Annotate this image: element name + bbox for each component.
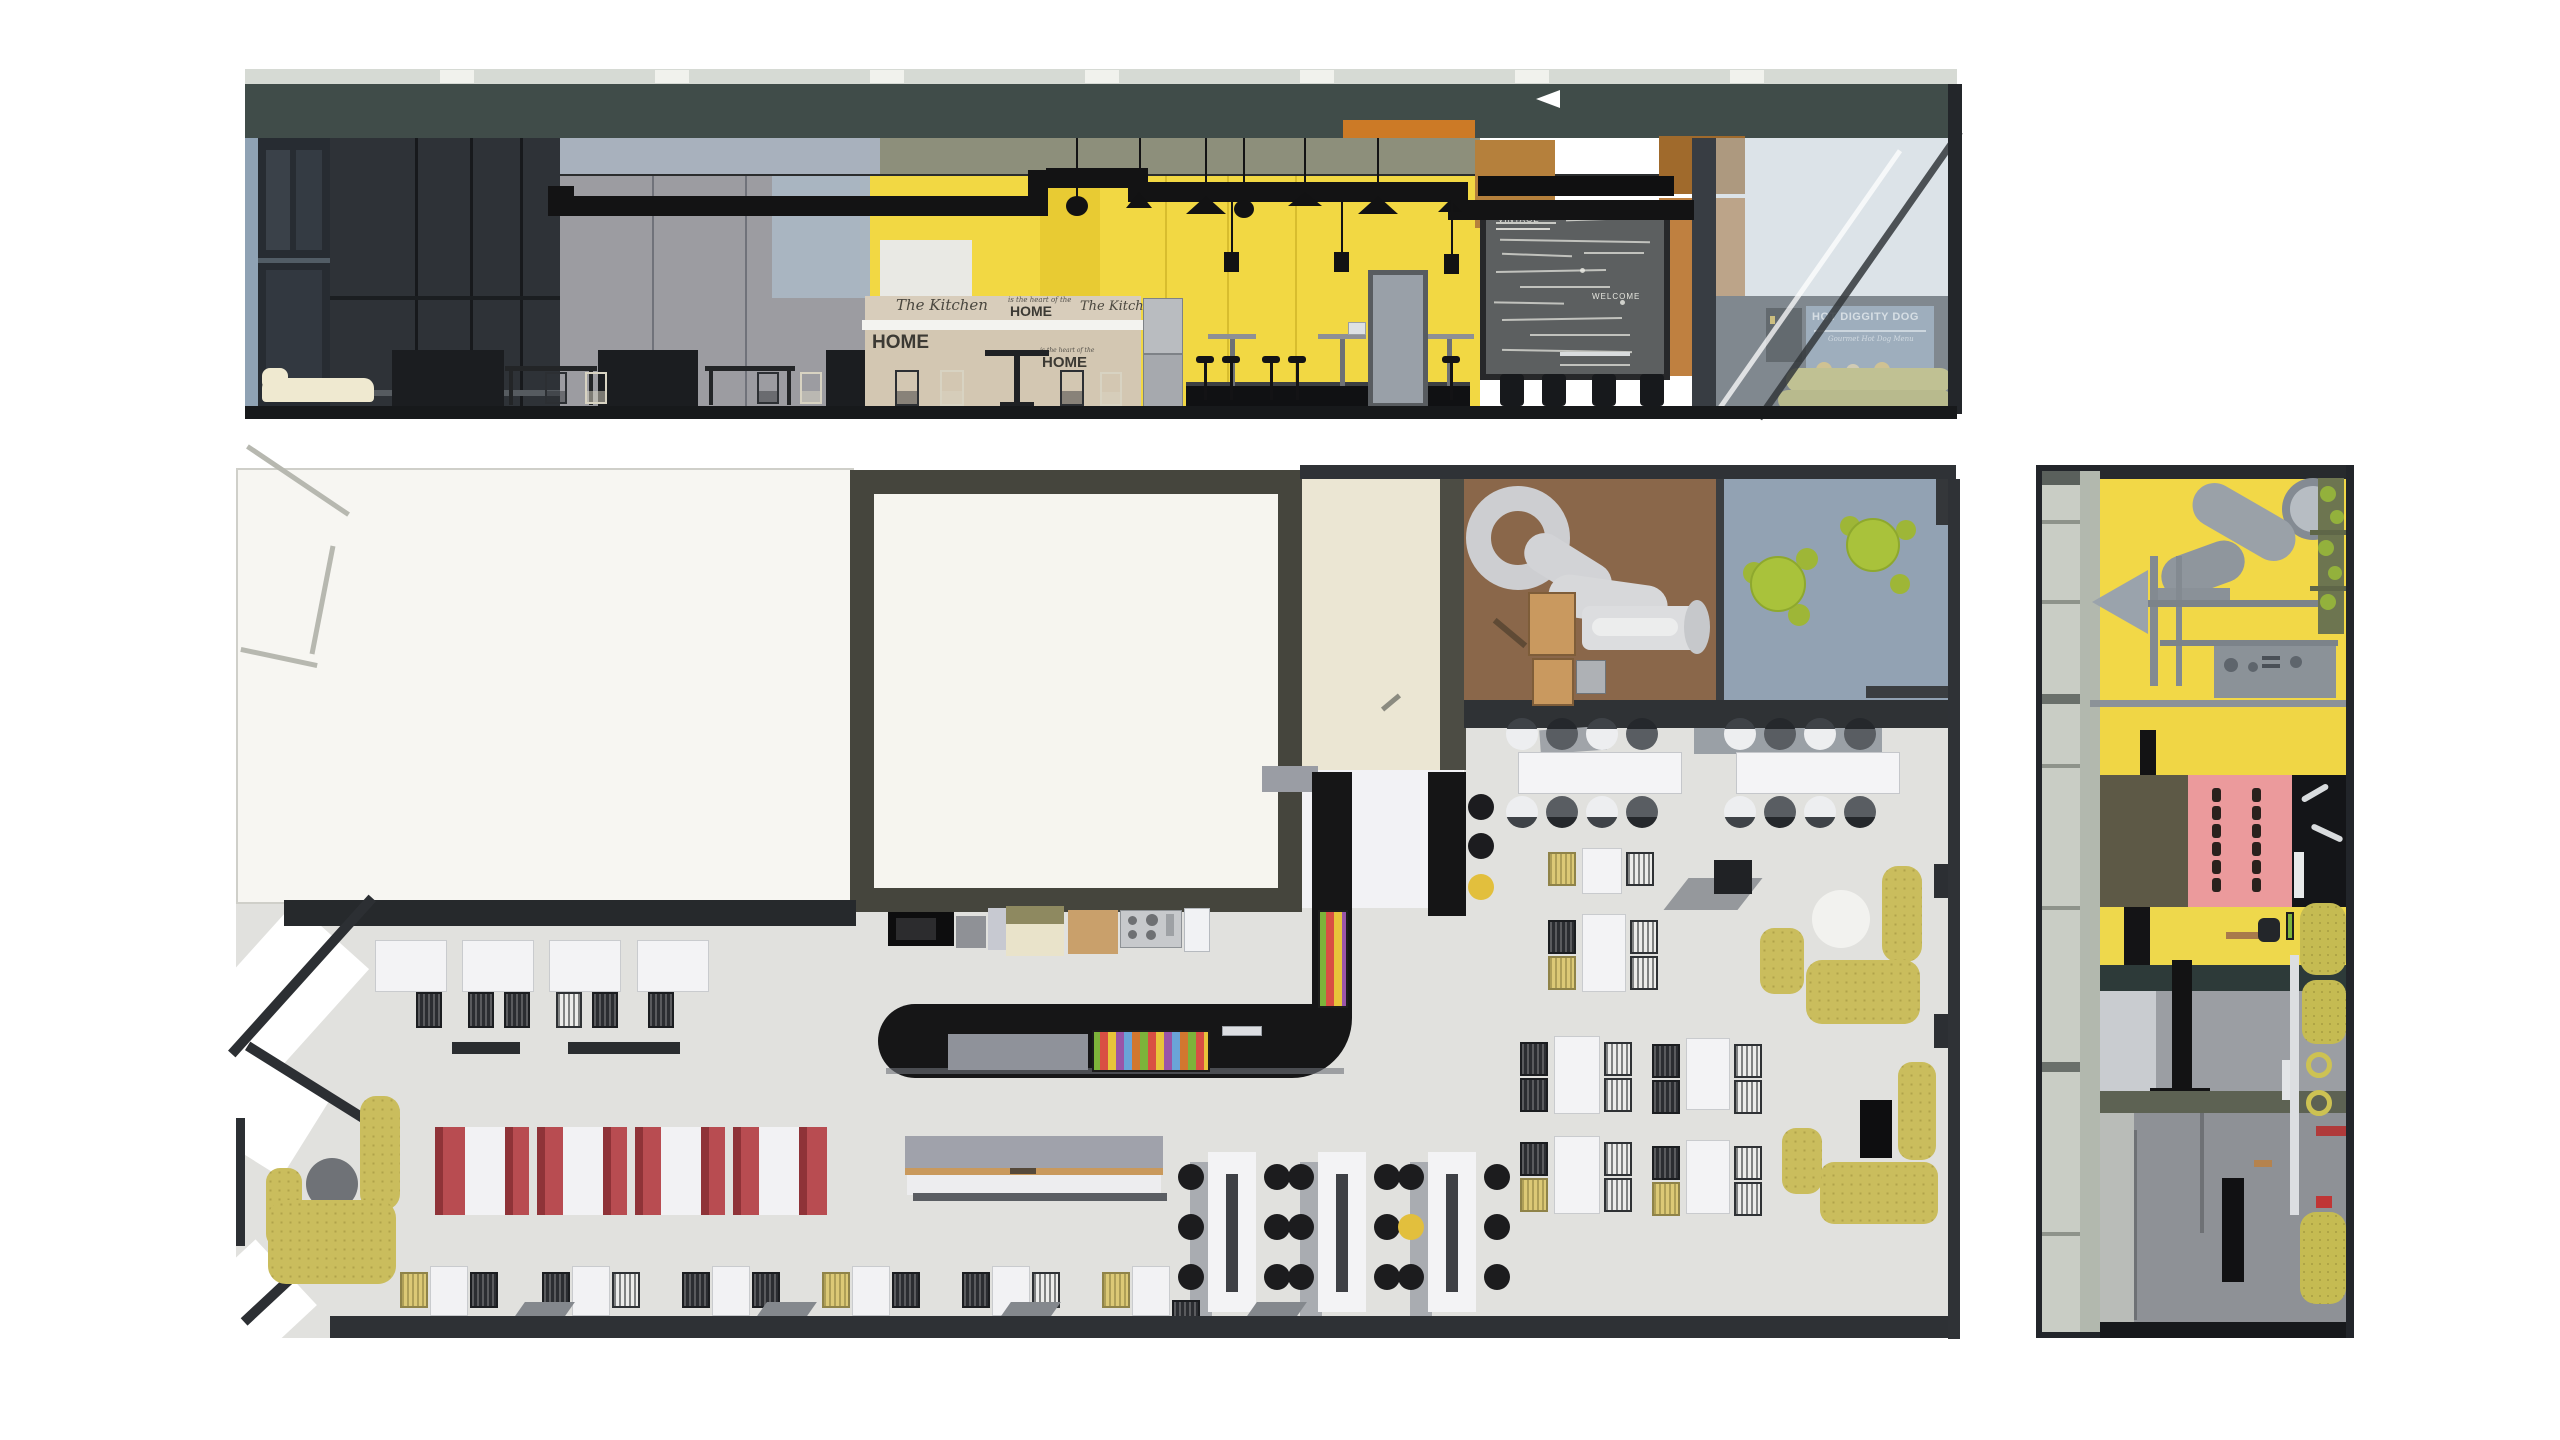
bar-table: [1208, 334, 1256, 339]
booth-bench-red: [603, 1127, 627, 1215]
ceiling-band: [460, 138, 880, 176]
chalk-flourish: [1584, 252, 1644, 254]
stool: [1374, 1214, 1400, 1240]
duct: [1448, 200, 1694, 220]
concrete-joint: [2042, 520, 2080, 524]
media-kiosk: [1860, 1100, 1892, 1158]
condiment-counter-wood: [905, 1168, 1163, 1175]
chair: [1520, 1178, 1548, 1212]
chair: [556, 992, 582, 1028]
slide-loop: [1466, 486, 1570, 590]
chalk-flourish: [1502, 253, 1572, 257]
booth-bench-red: [435, 1127, 465, 1215]
cross-section-panel: [0, 0, 2560, 1440]
crossbar: [2160, 640, 2338, 646]
wine-bottle: [2212, 824, 2221, 838]
pedestal-table-post: [1014, 356, 1020, 406]
top-edge: [2100, 465, 2346, 479]
pendant-cube: [1444, 254, 1459, 274]
cafe-table: [1554, 1136, 1600, 1214]
servery-inset: [948, 1034, 1088, 1070]
machinery-slot: [2262, 656, 2280, 660]
booth-bench-red: [733, 1127, 759, 1215]
banquette: [2302, 980, 2346, 1044]
lounge-armchair: [1782, 1128, 1822, 1194]
chalk-dot: [1620, 300, 1625, 305]
pendant-rod: [1243, 138, 1245, 202]
concrete-block: [2042, 694, 2080, 704]
servery-counter: [1312, 772, 1352, 1018]
table-shadow: [1190, 1162, 1212, 1326]
pendant-cord: [1341, 192, 1343, 254]
bar-table: [1424, 334, 1474, 339]
bench-dark: [568, 1042, 680, 1054]
communal-chair: [1764, 796, 1796, 828]
duct-horizontal: [2150, 1088, 2210, 1102]
duct: [1028, 170, 1048, 216]
play-platform: [1532, 658, 1574, 706]
top-wall: [1300, 465, 1956, 479]
wire-chair: [545, 372, 567, 404]
skylight-curb: [1515, 70, 1549, 83]
wire-chair: [975, 372, 997, 404]
table-shadow: [1410, 1162, 1432, 1326]
banquette: [2300, 1212, 2346, 1304]
duct: [548, 196, 1048, 216]
plant: [2328, 566, 2342, 580]
stool: [1288, 1164, 1314, 1190]
booth-table: [563, 1127, 603, 1215]
glass-reflection: [1703, 149, 1902, 430]
dining-table: [637, 940, 709, 992]
burner: [1146, 914, 1158, 926]
stool: [1264, 1264, 1290, 1290]
table-leg: [589, 371, 593, 405]
slide-curve-hint: [2310, 823, 2343, 843]
chair: [1652, 1146, 1680, 1180]
pedestal-table-base: [1000, 402, 1034, 407]
chair: [416, 992, 442, 1028]
bar-table-post: [1230, 339, 1235, 386]
chair: [1734, 1146, 1762, 1180]
room-1-notch-line: [246, 444, 350, 516]
plant-stem: [2318, 478, 2344, 634]
plant: [2330, 510, 2344, 524]
salad-bar: [1318, 910, 1348, 1008]
pendant-cord: [1451, 196, 1453, 256]
floor-line: [2100, 1322, 2346, 1338]
lounge-sofa: [268, 1200, 396, 1284]
skylight-curb: [1085, 70, 1119, 83]
glazing-dark: [330, 138, 560, 408]
stool: [1178, 1164, 1204, 1190]
booth-bench-red: [799, 1127, 827, 1215]
pendant-cone: [1438, 200, 1462, 212]
communal-chair: [1586, 796, 1618, 828]
cafe-table: [430, 1266, 468, 1316]
wine-bottle: [2252, 788, 2261, 802]
communal-chair: [1626, 796, 1658, 828]
chair: [822, 1272, 850, 1308]
dining-floor: [236, 898, 1950, 1338]
chair: [1734, 1182, 1762, 1216]
wine-zone-wall: [2100, 775, 2188, 907]
chair: [1032, 1272, 1060, 1308]
wall-joint: [652, 176, 654, 408]
kids-table-pod: [1743, 562, 1765, 584]
grill-station: [1068, 910, 1118, 954]
slide-tube: [1582, 606, 1702, 650]
bar-stool: [1262, 356, 1280, 400]
communal-chair: [1724, 718, 1756, 750]
white-slat: [2290, 955, 2299, 1215]
banquette-dark: [826, 350, 936, 406]
counter-script-text: The Kitchen: [1080, 300, 1160, 313]
chaise-back: [262, 368, 288, 390]
office-shelf-colors: [2286, 912, 2294, 940]
chair: [400, 1272, 428, 1308]
chair: [1734, 1080, 1762, 1114]
poster-food: [1816, 362, 1832, 378]
wall-joint: [2134, 1130, 2137, 1320]
stool: [1484, 1214, 1510, 1240]
bar-table-post: [1447, 339, 1452, 386]
kitchen-counter: [1006, 906, 1064, 924]
glass-mullion-diagonal: [1756, 130, 1962, 421]
door-swing: [1381, 694, 1401, 712]
wire-chair: [800, 372, 822, 404]
wine-bottle: [2252, 806, 2261, 820]
cafe-table: [1582, 848, 1622, 894]
stool: [1398, 1264, 1424, 1290]
presentation-board: VINTAGEWELCOMEHOT DIGGITY DOGGourmet Hot…: [0, 0, 2560, 1440]
stool: [1398, 1164, 1424, 1190]
banquette-dark: [392, 350, 504, 406]
wire-chair: [1100, 372, 1122, 406]
skylight-curb: [1300, 70, 1334, 83]
poster-underline: [1814, 330, 1926, 332]
communal-chair: [1724, 796, 1756, 828]
pendant-teardrop: [1234, 200, 1254, 218]
wall-bench: [1694, 728, 1882, 754]
kitchen-equipment: [888, 912, 954, 946]
chair: [752, 1272, 780, 1308]
table-shadow: [1300, 1162, 1322, 1326]
wine-bottle: [2212, 878, 2221, 892]
kiosk-shadow: [1663, 878, 1762, 910]
bar-stool: [1368, 356, 1386, 400]
dining-table: [375, 940, 447, 992]
chalkboard: [1486, 210, 1664, 374]
appliance-stack: [1143, 354, 1183, 408]
angled-wall: [241, 1236, 336, 1325]
slide-flange: [2152, 588, 2230, 602]
chalk-dot: [1580, 268, 1585, 273]
wall-joint: [1165, 176, 1167, 408]
table-top: [705, 366, 795, 371]
floor-plan-panel: [0, 0, 2560, 1440]
communal-chair: [1844, 718, 1876, 750]
booth-bench-red: [505, 1127, 529, 1215]
wire-chair: [585, 372, 607, 404]
table-leg: [1015, 371, 1019, 405]
duct: [1046, 168, 1130, 188]
shelf-line: [2150, 712, 2346, 717]
hot-diggity-dog-sign: HOT DIGGITY DOG: [1812, 312, 1919, 323]
burner: [1128, 916, 1137, 925]
storefront-pane: [266, 150, 290, 250]
pendant-cube: [1224, 252, 1239, 272]
chalk-flourish: [1530, 334, 1630, 336]
lounge-sofa: [1806, 960, 1920, 1024]
duct: [548, 186, 574, 216]
servery-counter-lip: [886, 1068, 1344, 1074]
booth-table: [465, 1127, 505, 1215]
office-band-yellow: [2100, 907, 2346, 965]
section-marker: [1536, 90, 1560, 108]
floor-line: [245, 406, 1957, 419]
chair: [468, 992, 494, 1028]
south-wall: [330, 1316, 1952, 1338]
concrete-strip: [2042, 471, 2080, 1332]
chair: [682, 1272, 710, 1308]
wire-chair: [940, 370, 964, 406]
kitchen-equipment: [956, 916, 986, 948]
chair: [1652, 1080, 1680, 1114]
wall-yellow-column: [1040, 176, 1100, 408]
stool: [1264, 1214, 1290, 1240]
slide-ring: [2282, 478, 2344, 540]
stool: [1288, 1214, 1314, 1240]
cooktop: [1120, 910, 1182, 948]
stool: [1264, 1164, 1290, 1190]
banquette: [2300, 903, 2346, 975]
lobby-chair: [1592, 374, 1616, 406]
servery-counter: [878, 1004, 1352, 1078]
playground-floor: [1464, 479, 1722, 701]
skylight-curb: [440, 70, 474, 83]
stool: [1374, 1164, 1400, 1190]
concrete-joint: [2042, 906, 2080, 910]
stool: [1484, 1264, 1510, 1290]
lounge-table-white: [1812, 890, 1870, 948]
chaise: [262, 378, 374, 402]
condiment-counter-base: [913, 1193, 1167, 1201]
appliance-stack: [1143, 298, 1183, 354]
concrete-block: [2042, 471, 2080, 485]
counter-script-text: The Kitchen: [896, 298, 988, 313]
bar-stool: [1222, 356, 1240, 400]
wall-pier: [1934, 864, 1956, 898]
chalk-flourish: [1496, 269, 1606, 273]
wall-gray: [560, 176, 870, 408]
chair: [1604, 1142, 1632, 1176]
poster-food: [1874, 362, 1890, 378]
plant-shelf: [2310, 530, 2346, 535]
chair: [1630, 956, 1658, 990]
gray-zone: [2100, 1113, 2346, 1323]
duct-vertical: [2140, 730, 2156, 916]
floor-mask: [153, 1239, 317, 1400]
slide-elbow: [1517, 526, 1620, 611]
back-room-cream: [1302, 472, 1464, 770]
slide-tube-highlight: [1592, 618, 1678, 636]
condiment-counter-front: [907, 1175, 1161, 1195]
chair: [892, 1272, 920, 1308]
lounge-sofa: [1882, 866, 1922, 962]
standing-table: [1208, 1152, 1256, 1312]
pendant-cone: [1288, 192, 1322, 206]
wine-bottle: [2212, 788, 2221, 802]
mast: [2150, 556, 2158, 686]
lounge-armchair: [1760, 928, 1804, 994]
wire-chair: [1060, 370, 1084, 406]
wire-chair: [757, 372, 779, 404]
crossbar: [2148, 600, 2338, 607]
booth-table: [661, 1127, 701, 1215]
communal-chair: [1546, 796, 1578, 828]
kitchen-equipment: [988, 908, 1006, 950]
kitchen-equipment: [896, 918, 936, 940]
table-top: [505, 366, 597, 371]
communal-table: [1518, 752, 1682, 794]
chair: [1548, 920, 1576, 954]
cafe-table: [1686, 1038, 1730, 1110]
kids-table-pod: [1896, 520, 1916, 540]
burner: [1146, 930, 1156, 940]
stool-yellow: [1398, 1214, 1424, 1240]
menu-board-accent: [1770, 316, 1775, 324]
storefront-panel: [258, 138, 330, 408]
kiosk: [1714, 860, 1752, 894]
chalk-flourish: [1560, 364, 1630, 366]
laptop: [1348, 322, 1366, 335]
counter-script2-text: is the heart of the: [1040, 348, 1094, 354]
door-threshold: [515, 1302, 575, 1316]
chair: [962, 1272, 990, 1308]
counter-home-text: HOME: [1010, 304, 1052, 318]
menu-board: [1766, 308, 1802, 362]
tray-stack: [1222, 1026, 1262, 1036]
booth-bench-red: [537, 1127, 563, 1215]
cafe-table: [572, 1266, 610, 1316]
room-2: [874, 494, 1278, 888]
lounge-sofa: [1898, 1062, 1936, 1160]
play-panel: [1576, 660, 1606, 694]
standing-table: [1428, 1152, 1476, 1312]
light-column: [2100, 1113, 2134, 1323]
floor-mask: [161, 902, 369, 1118]
communal-chair: [1764, 718, 1796, 750]
stool-ring: [2306, 1090, 2332, 1116]
chair: [1652, 1182, 1680, 1216]
ceiling-band: [880, 138, 1480, 176]
storefront-pane: [296, 150, 322, 250]
condiment-detail: [1010, 1168, 1036, 1174]
skylight-curb: [655, 70, 689, 83]
wall-yellow: [868, 176, 1480, 408]
lobby-chair: [1542, 374, 1566, 406]
lobby-back-wall: [1700, 296, 1952, 408]
pendant-rod: [1377, 138, 1379, 198]
chair: [1652, 1044, 1680, 1078]
chair: [612, 1272, 640, 1308]
east-wall: [1948, 479, 1960, 1339]
dining-table: [462, 940, 534, 992]
machinery-dial: [2248, 662, 2258, 672]
communal-table: [1736, 752, 1900, 794]
kids-table-pod: [1788, 604, 1810, 626]
hotdog-subtitle: Gourmet Hot Dog Menu: [1828, 336, 1914, 343]
chalk-flourish: [1520, 286, 1610, 288]
slide-elbow: [1546, 572, 1671, 630]
chalk-flourish: [1502, 317, 1622, 321]
servery-pass: [1262, 766, 1318, 792]
wall-joint: [2200, 1113, 2204, 1233]
chair: [1626, 852, 1654, 886]
pendant-rod: [1205, 138, 1207, 198]
plant: [2320, 486, 2336, 502]
plant: [2318, 540, 2334, 556]
pendant-rod: [1076, 138, 1078, 198]
chalk-flourish: [1494, 301, 1564, 304]
pendant-cube: [1334, 252, 1349, 272]
concrete-joint: [2042, 600, 2080, 604]
hotdog-poster: [1806, 306, 1934, 386]
table-leg: [709, 371, 713, 405]
left-wall: [236, 1118, 245, 1246]
storefront-pane: [266, 270, 322, 390]
counter-home-text: HOME: [872, 333, 929, 352]
spire: [2092, 570, 2148, 634]
cross-frame: [2036, 465, 2354, 1338]
wine-bottle: [2252, 860, 2261, 874]
tile-wall: [880, 240, 972, 408]
duct: [1448, 182, 1468, 220]
concrete-joint: [2042, 764, 2080, 768]
olive-band: [2100, 1091, 2346, 1113]
chair: [1520, 1142, 1548, 1176]
room-1-south-wall: [284, 900, 856, 926]
glazing-transom: [330, 296, 560, 300]
poster-food: [1846, 364, 1860, 378]
slide-elbow: [2185, 475, 2304, 569]
kids-table: [1846, 518, 1900, 572]
communal-chair: [1804, 718, 1836, 750]
gray-zone: [2100, 991, 2346, 1091]
wine-bottle: [2212, 806, 2221, 820]
banquette-dark: [598, 350, 698, 406]
bar-stool: [1196, 356, 1214, 400]
roof-band: [245, 84, 1957, 138]
wall-joint: [745, 176, 747, 408]
counter-stool: [1468, 794, 1494, 820]
slide-ring-inner: [2290, 486, 2336, 532]
kids-table-pod: [1840, 516, 1860, 536]
office-chair: [2258, 918, 2280, 942]
shelf-line: [2090, 700, 2346, 707]
slide-exit-flange: [1684, 600, 1710, 654]
wall-panel-bluegray: [772, 176, 870, 298]
parapet: [245, 69, 1957, 87]
burner: [1128, 930, 1137, 939]
duct-vertical: [2172, 960, 2192, 1135]
room-2-border: [850, 470, 1302, 912]
chair: [1604, 1178, 1632, 1212]
chair: [592, 992, 618, 1028]
banquette-base: [1778, 390, 1952, 410]
office-black-step: [2124, 907, 2150, 965]
